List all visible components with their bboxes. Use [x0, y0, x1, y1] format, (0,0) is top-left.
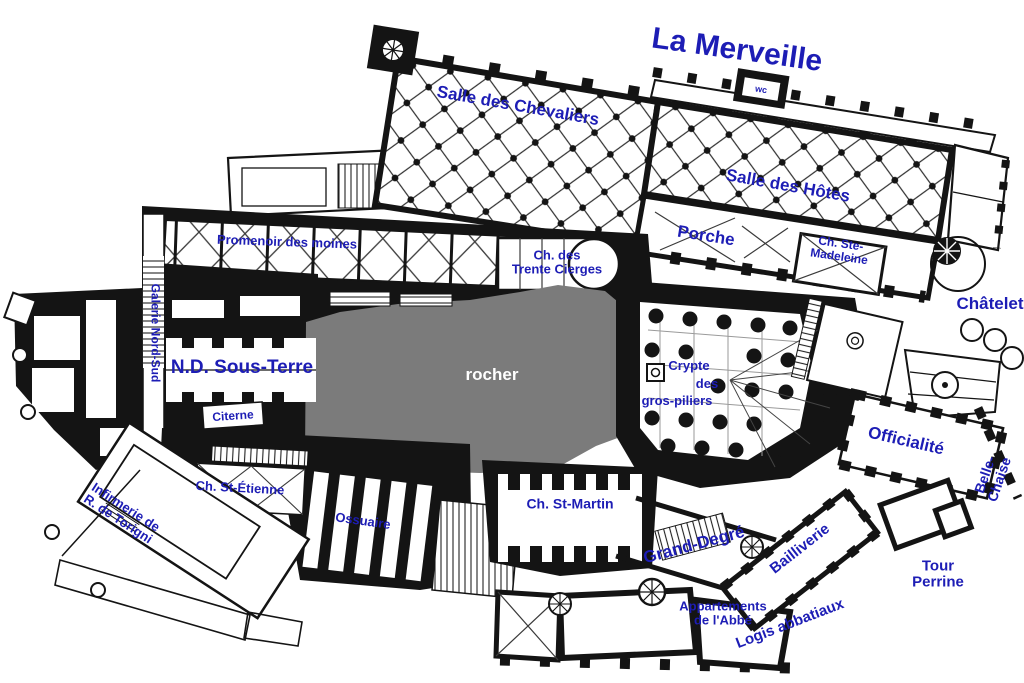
citerne-room [202, 402, 263, 429]
nw-stair-tower [367, 25, 419, 76]
east-stair-rosette [933, 237, 961, 265]
floor-plan-page: La MerveilleSalle des ChevalierswcSalle … [0, 0, 1024, 683]
abbey-floor-plan-drawing [0, 0, 1024, 683]
chapelle-trente-cierges [498, 238, 619, 290]
galerie-nord-sud-strip [143, 214, 164, 452]
